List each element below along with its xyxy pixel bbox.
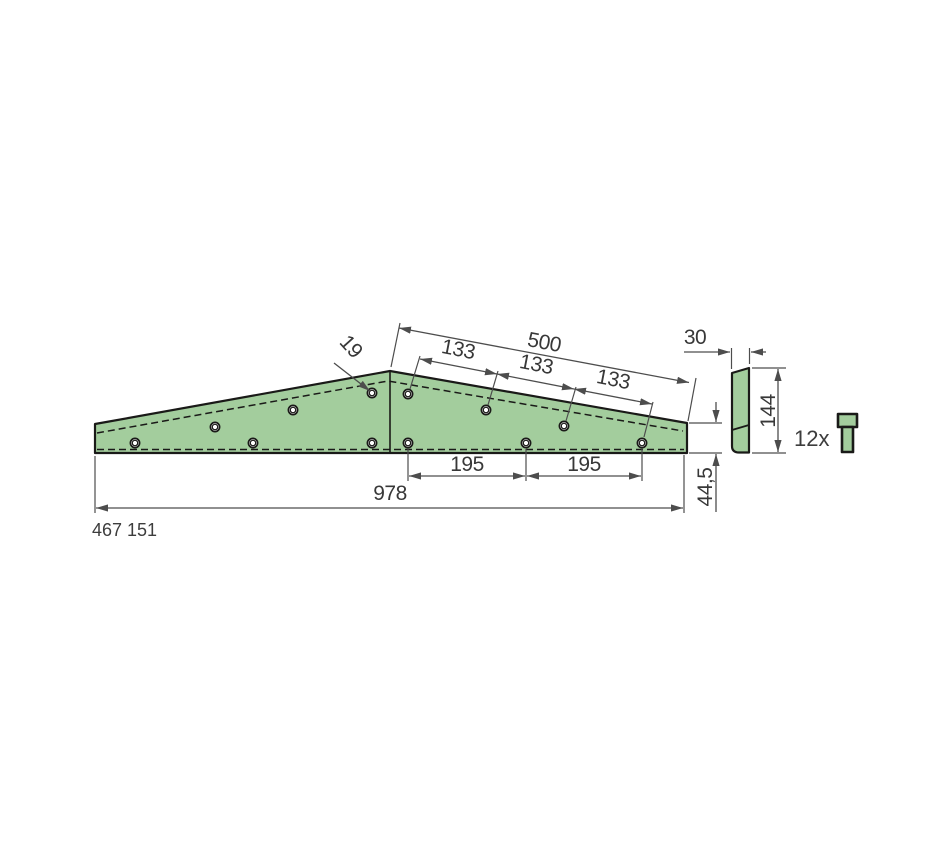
technical-drawing: 19 500 133 133 133 195 195 978 — [0, 0, 950, 860]
overall-length-label: 978 — [373, 482, 407, 505]
bolt-hole — [403, 438, 412, 447]
fastener-callout: 12x — [794, 414, 857, 452]
hole-diameter-label: 19 — [335, 331, 367, 363]
fastener-quantity-label: 12x — [794, 426, 829, 451]
part-number-label: 467 151 — [92, 520, 157, 540]
bottom-hole-spacing-label: 195 — [567, 453, 601, 476]
side-view-outline — [732, 368, 749, 453]
bolt-hole — [637, 438, 646, 447]
tip-height-label: 44,5 — [694, 468, 717, 507]
plate-side-view — [732, 368, 749, 453]
bolt-hole — [559, 421, 568, 430]
bolt-hole — [367, 438, 376, 447]
dim-44-5: 44,5 — [689, 402, 722, 512]
bolt-hole — [481, 405, 490, 414]
bolt-hole — [521, 438, 530, 447]
bottom-hole-spacing-label: 195 — [450, 453, 484, 476]
bolt-hole — [288, 405, 297, 414]
bolt-head — [838, 414, 857, 427]
bolt-hole — [403, 389, 412, 398]
dim-30: 30 — [684, 326, 766, 369]
side-height-label: 144 — [757, 393, 780, 427]
bolt-hole — [130, 438, 139, 447]
top-hole-spacing-label: 133 — [595, 365, 632, 394]
thickness-label: 30 — [684, 326, 706, 349]
bolt-icon — [838, 414, 857, 452]
bolt-hole — [248, 438, 257, 447]
drawing-canvas: 19 500 133 133 133 195 195 978 — [0, 0, 950, 860]
top-hole-spacing-label: 133 — [518, 350, 555, 379]
dim-144: 144 — [752, 368, 786, 453]
top-hole-spacing-label: 133 — [440, 335, 477, 364]
bolt-shank — [842, 427, 853, 452]
bolt-hole — [210, 422, 219, 431]
